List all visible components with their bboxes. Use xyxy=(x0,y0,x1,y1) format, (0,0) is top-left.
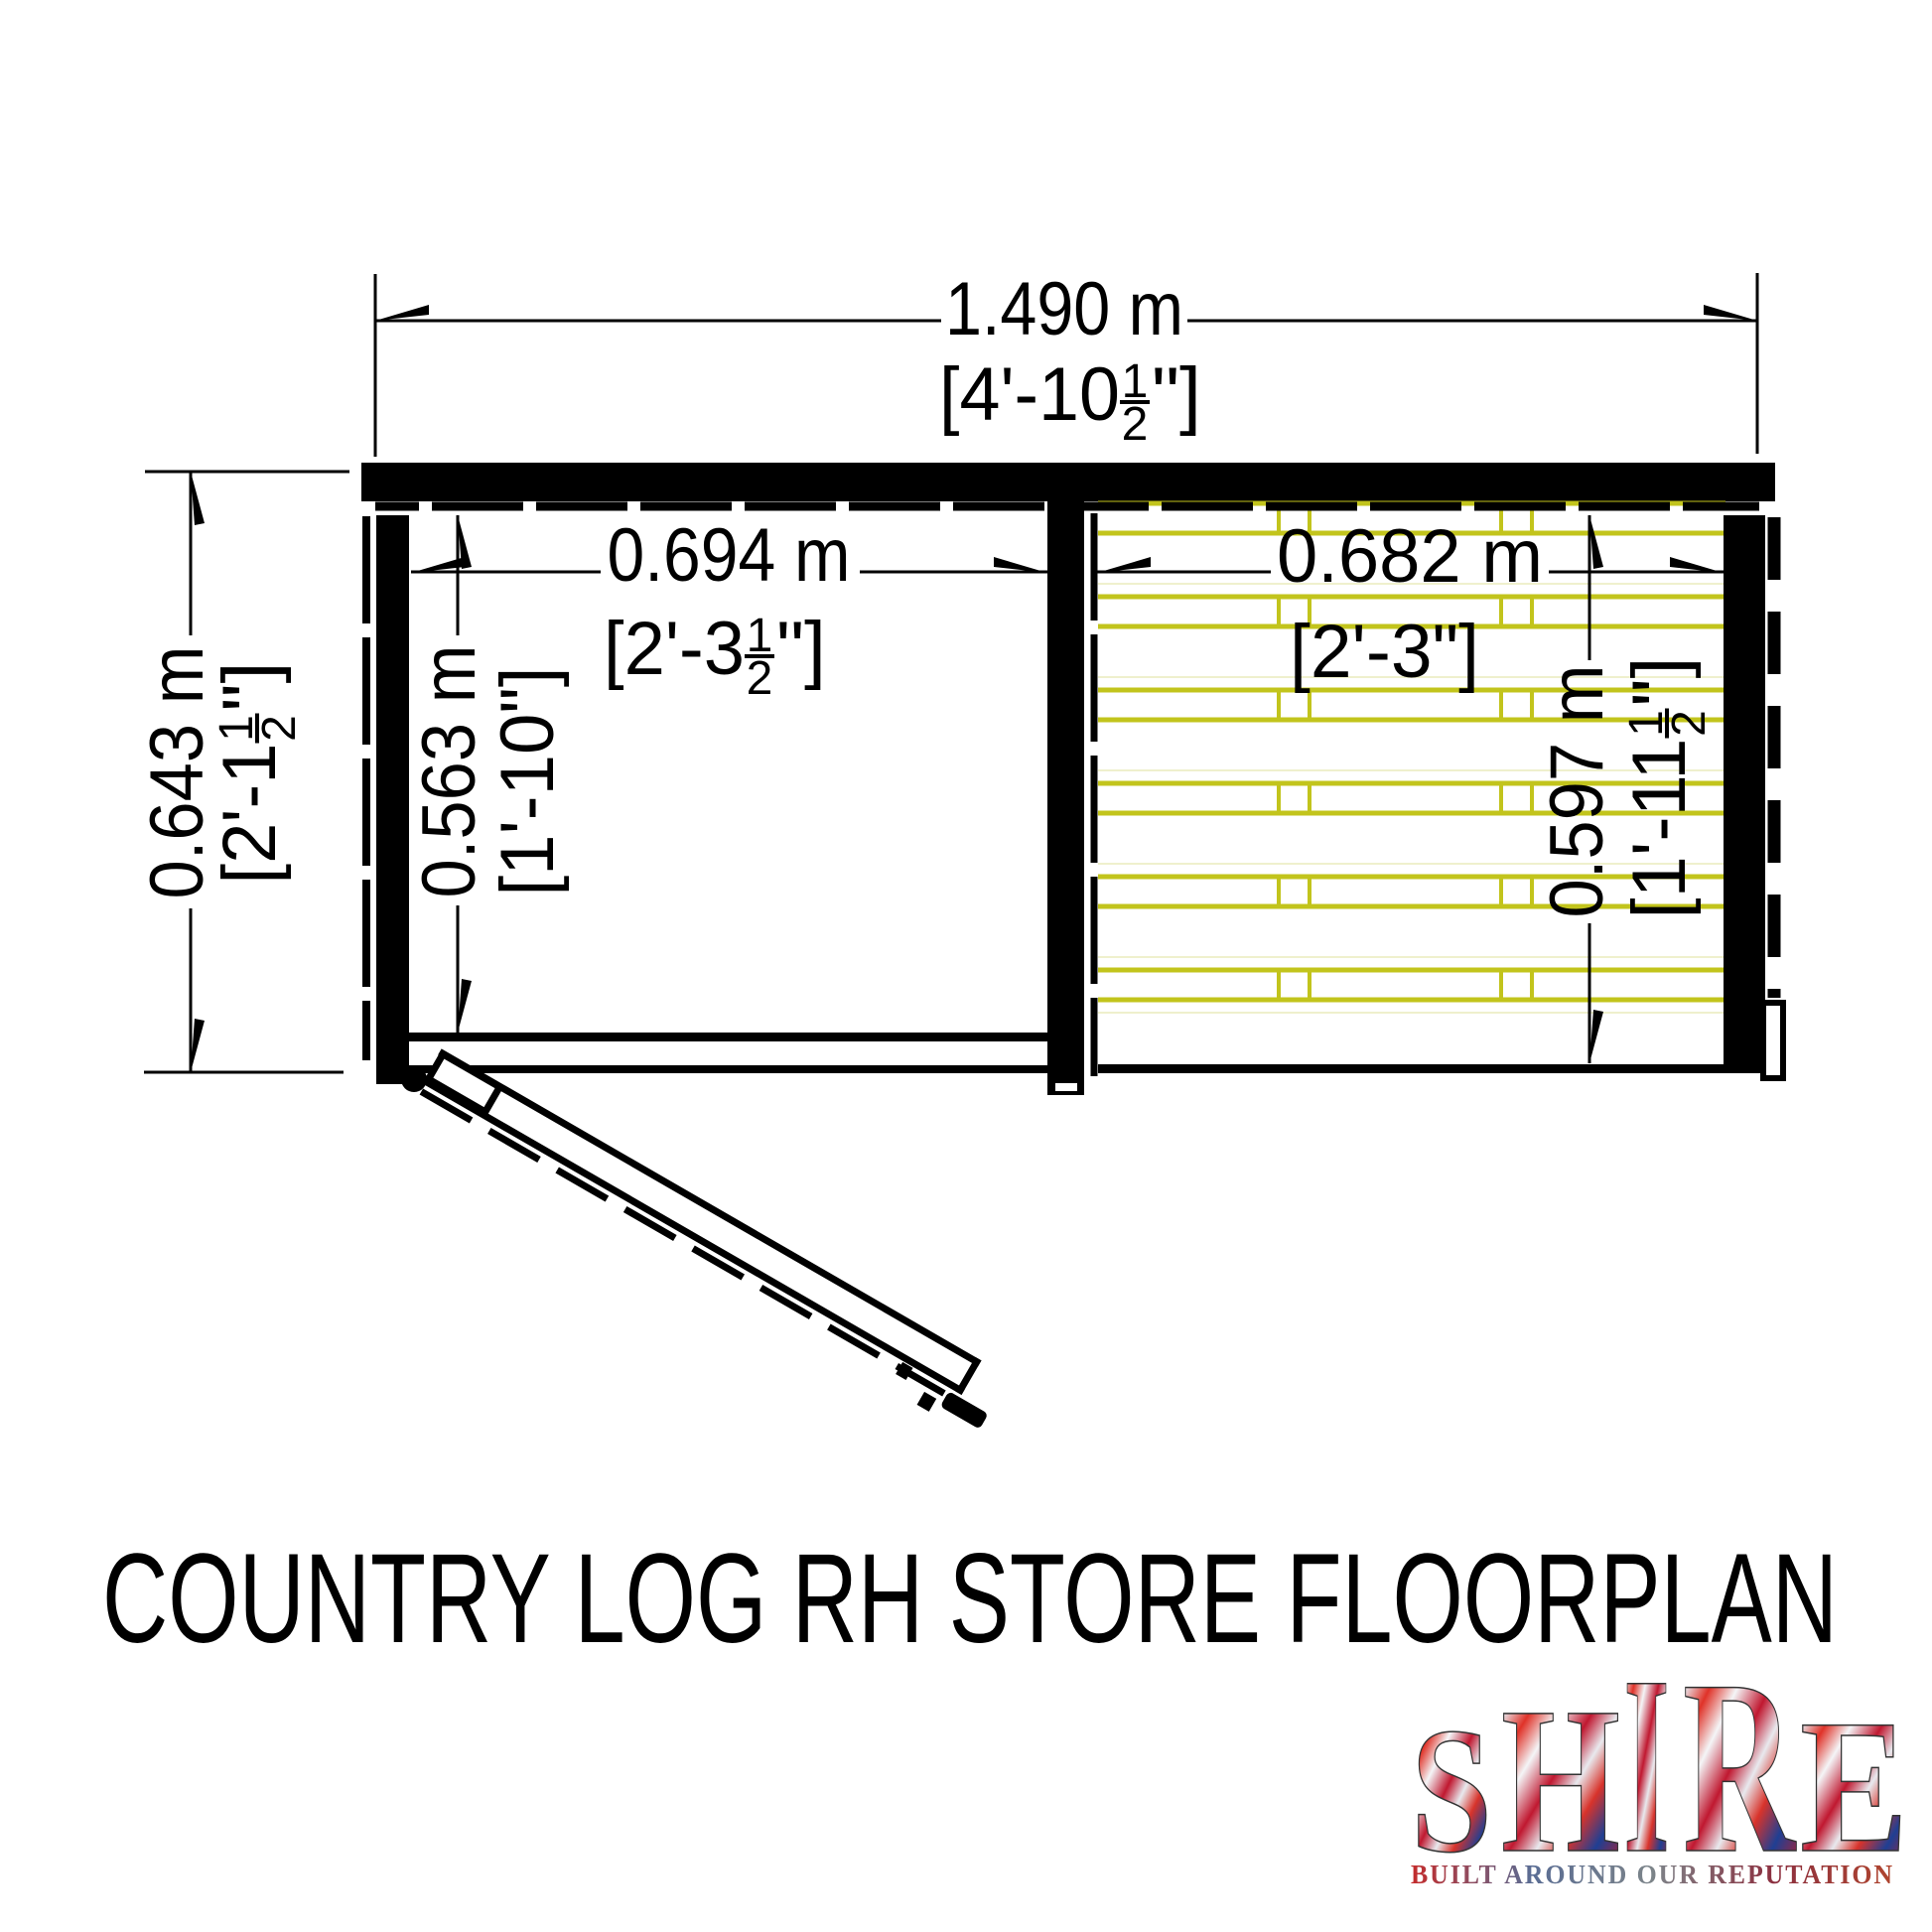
svg-text:2: 2 xyxy=(747,652,773,705)
svg-text:0.597 m: 0.597 m xyxy=(1535,665,1619,918)
svg-text:0.694 m: 0.694 m xyxy=(608,513,851,598)
svg-text:BUILT AROUND OUR REPUTATION: BUILT AROUND OUR REPUTATION xyxy=(1411,1860,1894,1889)
svg-text:[2'-3"]: [2'-3"] xyxy=(1290,610,1479,694)
svg-text:COUNTRY LOG RH STORE FLOORPLAN: COUNTRY LOG RH STORE FLOORPLAN xyxy=(102,1528,1838,1670)
svg-text:"]: "] xyxy=(1152,352,1201,437)
svg-text:"]: "] xyxy=(207,662,292,712)
svg-text:[1'-10"]: [1'-10"] xyxy=(485,667,570,897)
svg-text:1.490 m: 1.490 m xyxy=(945,267,1183,351)
svg-text:[2'-3: [2'-3 xyxy=(604,607,745,691)
svg-text:2: 2 xyxy=(1122,398,1149,451)
svg-text:0.682 m: 0.682 m xyxy=(1277,514,1543,599)
svg-text:[4'-10: [4'-10 xyxy=(939,352,1120,437)
svg-text:2: 2 xyxy=(1663,710,1716,737)
svg-text:[2'-1: [2'-1 xyxy=(207,744,292,885)
svg-text:"]: "] xyxy=(1617,657,1702,707)
svg-text:[1'-11: [1'-11 xyxy=(1617,739,1702,919)
svg-text:"]: "] xyxy=(776,607,826,691)
svg-text:0.563 m: 0.563 m xyxy=(407,645,491,898)
svg-text:2: 2 xyxy=(253,715,306,742)
